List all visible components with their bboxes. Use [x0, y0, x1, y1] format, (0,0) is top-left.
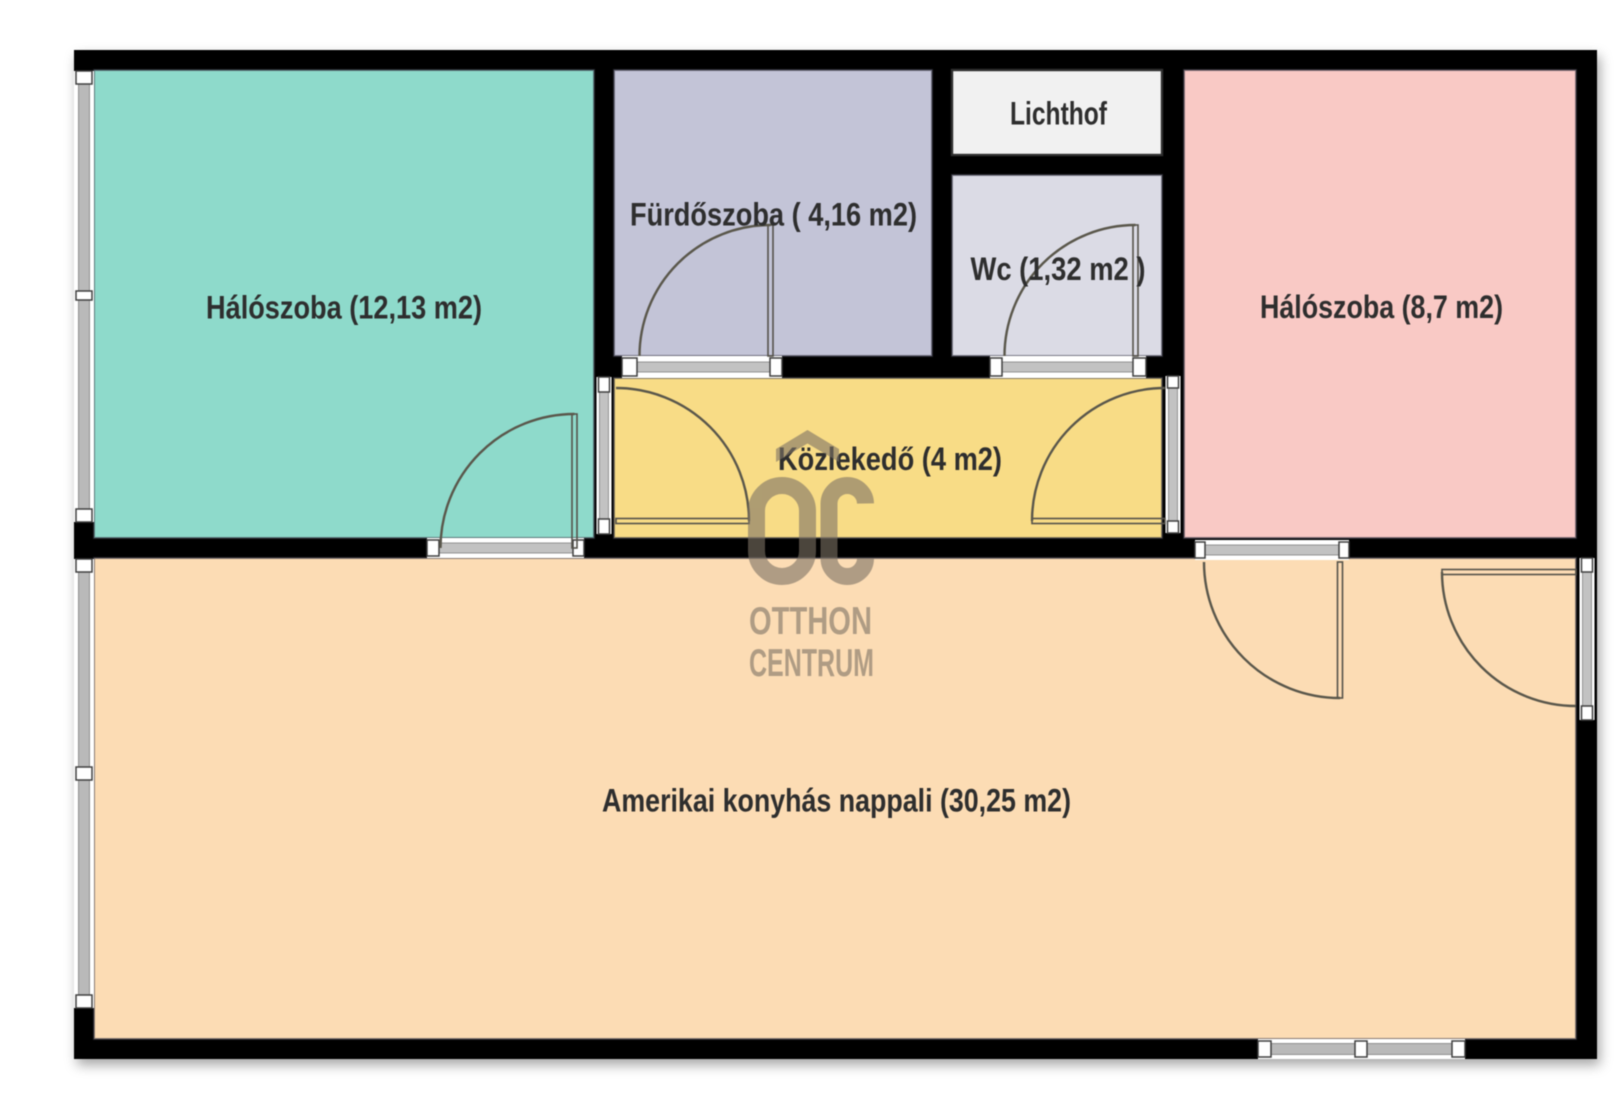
svg-text:Lichthof: Lichthof	[1010, 96, 1107, 132]
svg-text:Közlekedő (4 m2): Közlekedő (4 m2)	[778, 441, 1002, 477]
svg-text:CENTRUM: CENTRUM	[749, 642, 874, 685]
svg-text:OTTHON: OTTHON	[749, 600, 872, 643]
svg-text:Wc (1,32 m2 ): Wc (1,32 m2 )	[971, 251, 1146, 287]
svg-text:Amerikai konyhás nappali (30,2: Amerikai konyhás nappali (30,25 m2)	[602, 783, 1071, 819]
svg-text:Fürdőszoba ( 4,16 m2): Fürdőszoba ( 4,16 m2)	[630, 197, 917, 233]
svg-text:Hálószoba (8,7 m2): Hálószoba (8,7 m2)	[1260, 289, 1503, 325]
svg-text:Hálószoba (12,13 m2): Hálószoba (12,13 m2)	[206, 290, 482, 326]
